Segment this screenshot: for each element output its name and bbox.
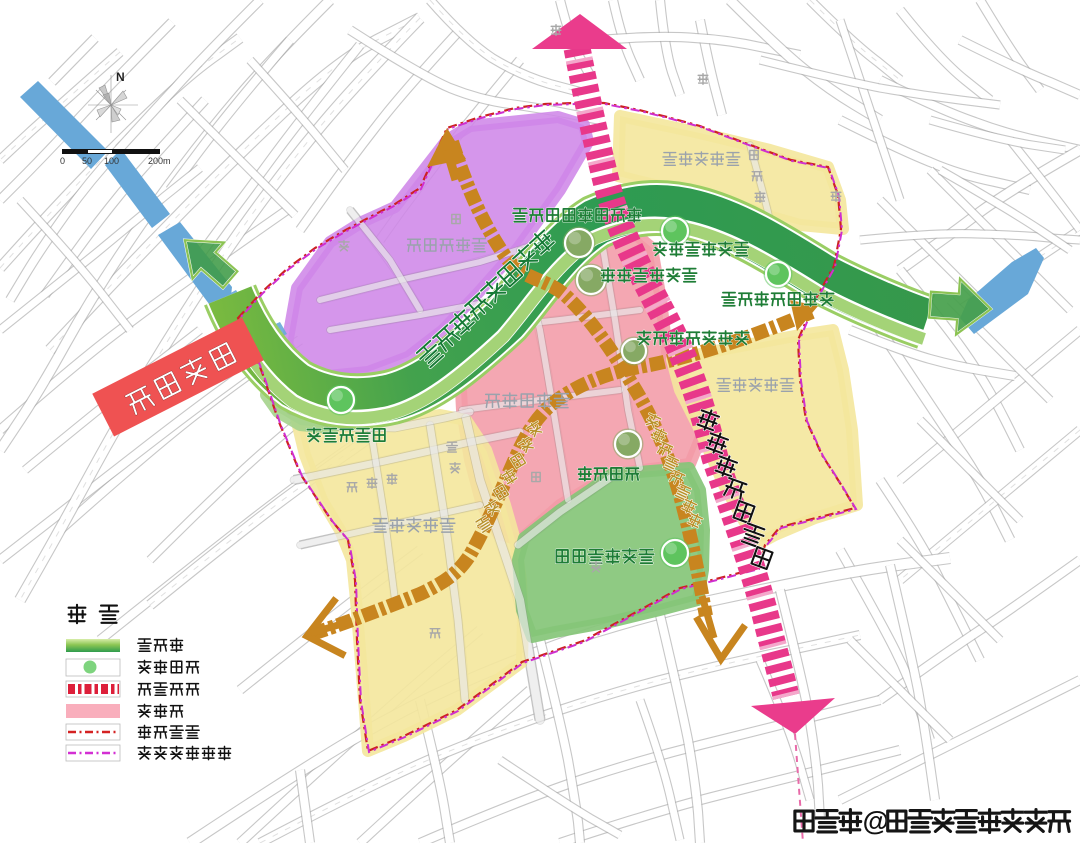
svg-text:@: @ [863,806,889,836]
svg-text:100: 100 [104,156,119,166]
svg-text:50: 50 [82,156,92,166]
svg-text:200m: 200m [148,156,171,166]
svg-text:0: 0 [60,156,65,166]
svg-text:N: N [116,70,125,84]
